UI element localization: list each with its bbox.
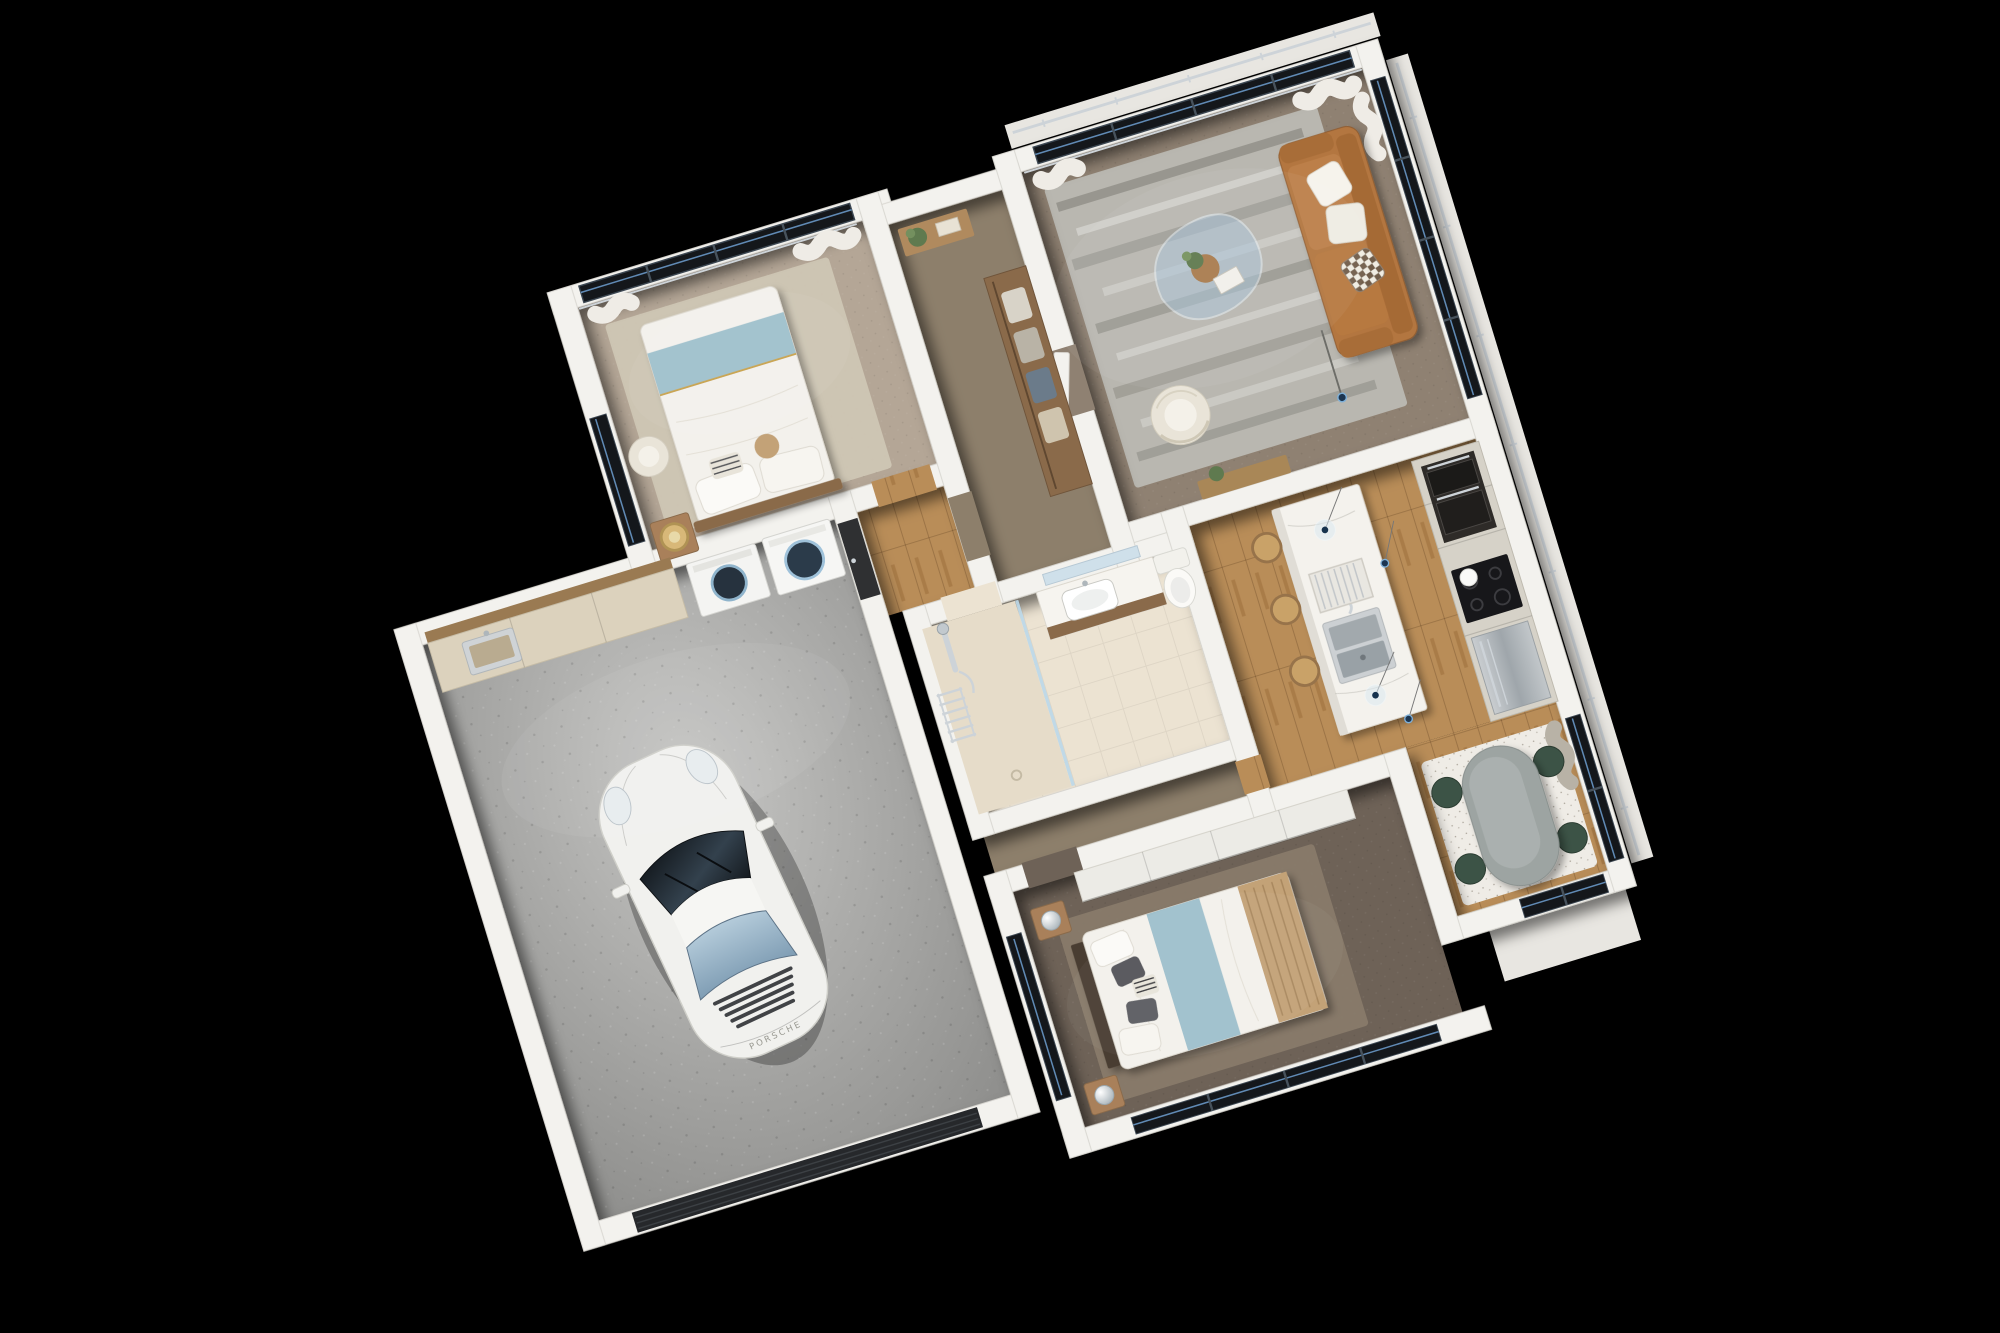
floor-plan-svg: PORSCHE bbox=[0, 0, 2000, 1333]
render-canvas: PORSCHE bbox=[0, 0, 2000, 1333]
